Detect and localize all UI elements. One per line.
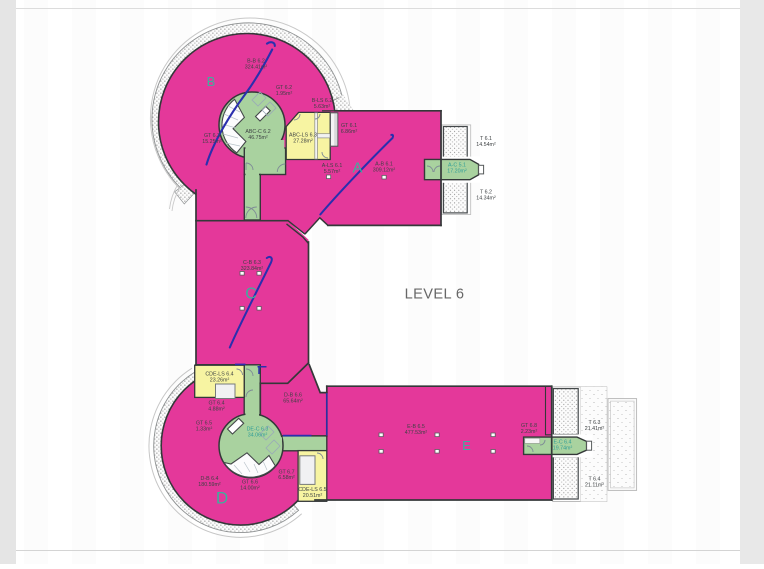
svg-text:5.57m²: 5.57m² [324,169,341,175]
svg-text:A: A [352,159,362,176]
svg-text:17.20m²: 17.20m² [447,168,467,174]
svg-text:20.51m²: 20.51m² [303,493,323,499]
svg-text:309.12m²: 309.12m² [373,167,396,173]
svg-text:6.58m²: 6.58m² [278,475,295,481]
svg-text:180.59m²: 180.59m² [198,482,221,488]
svg-text:D: D [216,489,228,508]
svg-text:1.95m²: 1.95m² [276,91,293,97]
svg-text:65.64m²: 65.64m² [283,398,303,404]
svg-text:46.75m²: 46.75m² [248,135,268,141]
svg-text:5.63m²: 5.63m² [314,104,331,110]
svg-text:324.41m²: 324.41m² [245,64,268,70]
svg-text:23.26m²: 23.26m² [210,377,230,383]
svg-text:323.84m²: 323.84m² [241,266,264,272]
svg-text:19.74m²: 19.74m² [553,446,573,452]
svg-text:LEVEL 6: LEVEL 6 [405,287,465,303]
svg-text:B: B [207,74,216,89]
svg-text:1.33m²: 1.33m² [196,426,213,432]
svg-text:477.53m²: 477.53m² [405,430,428,436]
svg-text:E: E [462,438,471,453]
svg-text:C: C [245,286,257,303]
svg-text:21.11m²: 21.11m² [585,482,604,488]
svg-text:34.06m²: 34.06m² [248,432,268,438]
svg-text:14.54m²: 14.54m² [476,142,496,148]
svg-text:14.00m²: 14.00m² [240,485,260,491]
svg-text:21.41m²: 21.41m² [585,426,605,432]
svg-text:15.25m²: 15.25m² [202,139,222,145]
svg-text:14.34m²: 14.34m² [476,195,496,201]
svg-text:27.28m²: 27.28m² [293,138,313,144]
svg-text:6.86m²: 6.86m² [341,129,358,135]
svg-text:2.23m²: 2.23m² [521,429,538,435]
svg-text:4.88m²: 4.88m² [208,406,225,412]
